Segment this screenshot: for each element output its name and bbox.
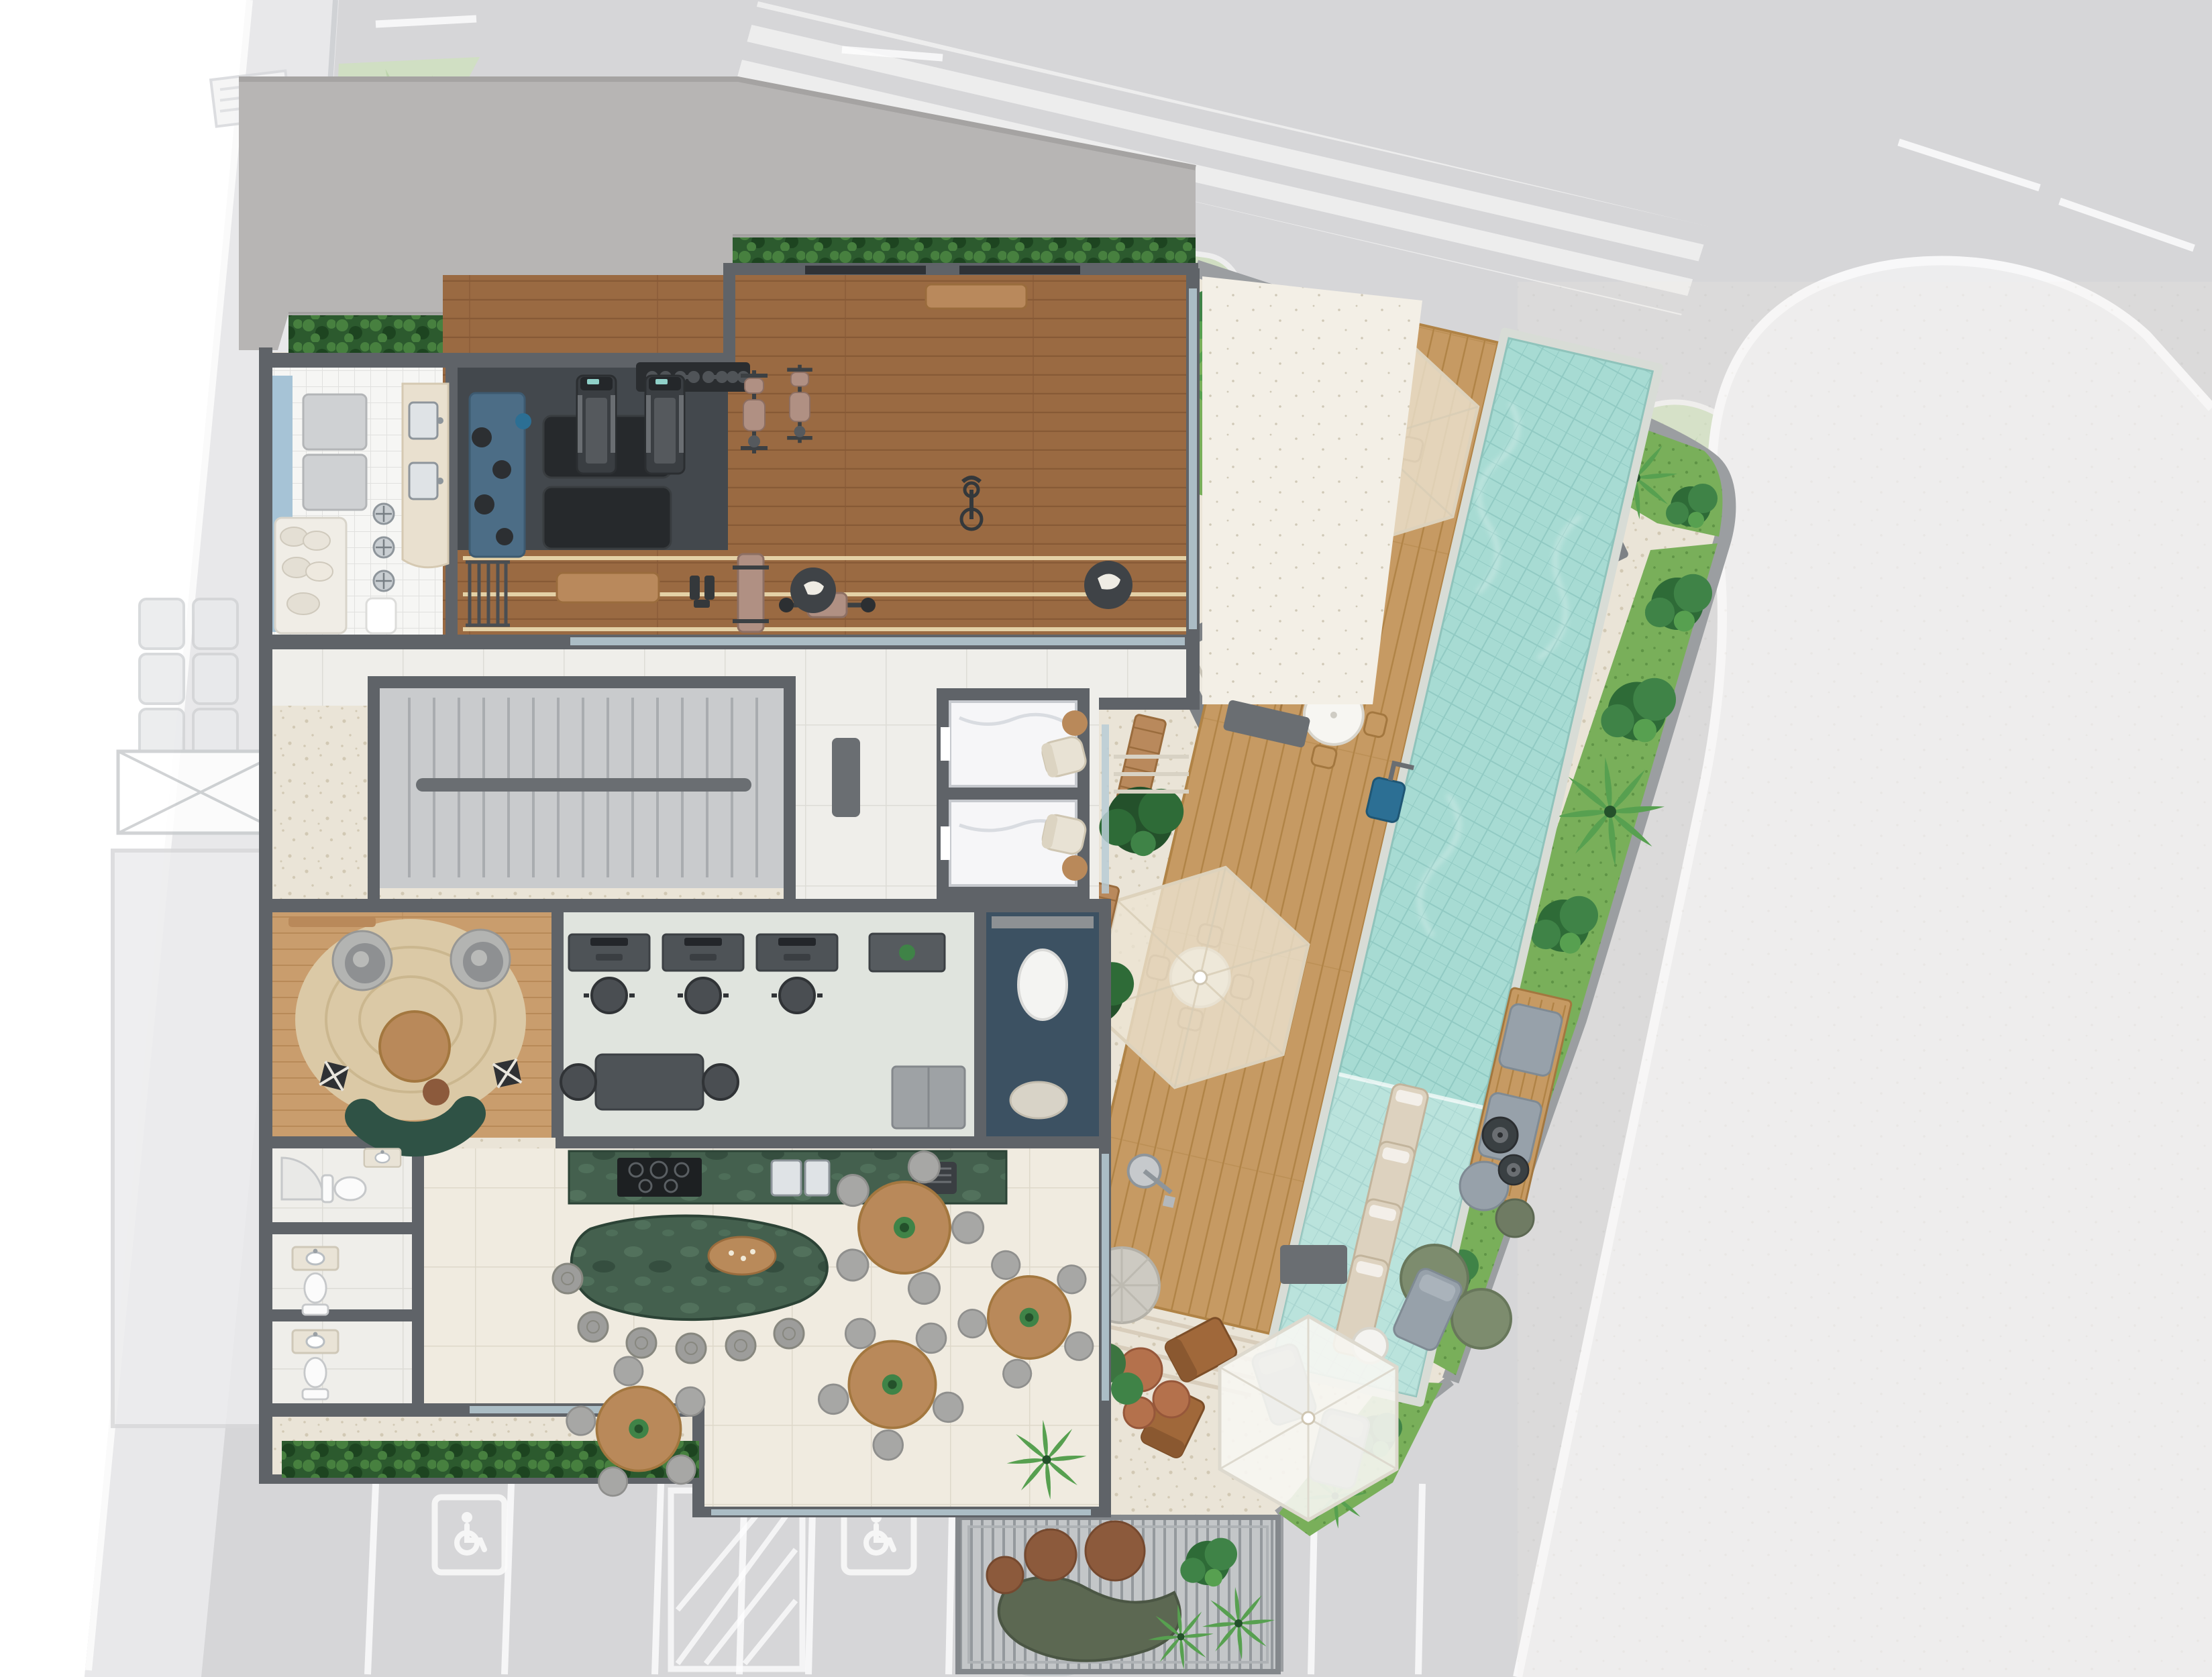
planter-bench xyxy=(1020,1046,1073,1152)
spa-shower-room xyxy=(272,376,448,633)
lobby-bench xyxy=(832,738,860,817)
elevator-bank xyxy=(937,688,1090,899)
exercise-bike xyxy=(961,478,982,529)
pool-deck-group xyxy=(966,260,1716,1446)
pouf xyxy=(423,1079,450,1105)
elevator-cabin xyxy=(941,702,1076,786)
director-chair xyxy=(319,1061,349,1091)
palm-icon xyxy=(352,68,457,175)
daybed-platform xyxy=(1465,987,1572,1205)
fire-bowl xyxy=(1499,1155,1528,1185)
wood-bench xyxy=(557,573,659,602)
lobby-floor xyxy=(796,703,1099,911)
side-table xyxy=(1062,855,1088,881)
corner-sidewalk-island xyxy=(1518,260,2212,1677)
in-pool-lounger xyxy=(1332,1254,1390,1358)
pool-coping xyxy=(1261,327,1664,1407)
kitchen-counter xyxy=(569,1151,1006,1203)
strength-machine xyxy=(787,365,812,443)
lobby-seating xyxy=(832,710,1189,881)
stair-handrail xyxy=(416,778,751,792)
sidewalk-speckle xyxy=(1518,282,2212,1677)
access-ramp xyxy=(1157,441,1629,759)
wheelchair-icon xyxy=(435,1497,505,1572)
cooktop xyxy=(617,1158,702,1197)
dining-table-set xyxy=(938,1225,1116,1401)
pool-lift-chair xyxy=(1365,760,1414,824)
party-room xyxy=(553,1129,1116,1502)
shaft-void xyxy=(118,751,283,833)
brown-lounger xyxy=(1139,1385,1206,1460)
accessible-wc xyxy=(282,1148,401,1202)
coworking-floor xyxy=(564,912,974,1138)
walls xyxy=(259,263,1200,1517)
stool xyxy=(553,1264,582,1293)
gray-lounger xyxy=(1391,1266,1465,1353)
stair-floor xyxy=(380,688,784,888)
gym-floor xyxy=(443,275,1196,645)
planter-bench xyxy=(1067,881,1120,986)
road-surface xyxy=(0,0,2212,1677)
building xyxy=(239,79,1422,1517)
parked-car xyxy=(988,1495,1108,1674)
dumbbells xyxy=(646,371,749,383)
desk xyxy=(757,934,837,1013)
towel xyxy=(804,581,824,594)
coffee-machine xyxy=(912,1162,957,1194)
pantry-nook xyxy=(992,916,1094,1118)
pouf xyxy=(790,567,836,613)
marquee-slab xyxy=(239,79,1196,350)
service-area-ghost xyxy=(113,599,283,1426)
double-sink xyxy=(772,1160,829,1195)
wc-3 xyxy=(293,1330,338,1399)
granite-island xyxy=(572,1216,827,1320)
glass-walls xyxy=(470,288,1197,1515)
towel xyxy=(366,598,396,633)
property-lot xyxy=(271,268,1727,1672)
fire-bowl xyxy=(1483,1118,1518,1152)
wheelchair-icon xyxy=(844,1497,914,1572)
lane-dashes xyxy=(376,19,2194,248)
meeting-desk xyxy=(561,1054,738,1110)
spa-bench-strip xyxy=(272,376,293,632)
road-median-islands xyxy=(582,201,1719,622)
deck-steps xyxy=(1063,1301,1263,1395)
training-mat xyxy=(543,416,671,478)
support-table xyxy=(870,934,945,971)
swimming-pool xyxy=(1272,338,1652,1396)
serving-table xyxy=(698,1277,751,1444)
outdoor-shower xyxy=(1122,1152,1183,1208)
coworking xyxy=(561,934,965,1128)
left-curb-line xyxy=(89,0,250,1670)
garden-walkway xyxy=(1202,276,1422,704)
streets xyxy=(0,0,2212,1677)
training-mat xyxy=(543,487,671,549)
in-pool-lounger xyxy=(1359,1140,1416,1245)
wood-bench xyxy=(926,284,1026,309)
stool xyxy=(627,1328,656,1358)
east-garden-furnishings xyxy=(1353,1118,1534,1363)
walkway-bench xyxy=(1222,700,1310,749)
lounge xyxy=(288,916,526,1139)
wash-counter xyxy=(403,384,448,567)
treadmill xyxy=(645,376,684,474)
wall-screens xyxy=(805,266,1080,274)
offsite-void xyxy=(0,0,248,1677)
stall-lines xyxy=(368,1484,1422,1674)
pergola-lounge xyxy=(958,1517,1278,1672)
stepper xyxy=(690,576,715,608)
palm-icon xyxy=(295,643,351,700)
dining-table-set xyxy=(812,1129,1001,1315)
cabinet xyxy=(892,1067,965,1128)
lounge-corner xyxy=(1084,1245,1347,1460)
dining-table-set xyxy=(796,1281,996,1480)
elevator-cabin xyxy=(941,801,1076,885)
planter-bench xyxy=(1114,714,1167,820)
shelf xyxy=(992,916,1094,928)
stair-hall xyxy=(409,698,757,877)
hedge-north-east xyxy=(733,237,1196,267)
street-parking-stall-band xyxy=(733,1,1709,315)
water-caustics xyxy=(1379,401,1610,949)
hedge-south xyxy=(282,1441,699,1478)
blue-kettlebell xyxy=(515,413,531,429)
dumbbell-rack xyxy=(636,362,750,392)
stool xyxy=(726,1331,755,1360)
pouf xyxy=(1025,1529,1076,1580)
outdoor-kitchen xyxy=(768,1257,829,1509)
desk xyxy=(569,934,649,1013)
green-lounge-pouf xyxy=(1452,1289,1511,1348)
green-lounge-pouf xyxy=(1401,1245,1468,1312)
gray-bench xyxy=(1280,1245,1347,1284)
no-parking-hatch xyxy=(671,1491,802,1669)
restrooms xyxy=(282,1148,401,1399)
basin xyxy=(1018,950,1067,1020)
dining-table-set xyxy=(558,1345,719,1502)
bowl-chair xyxy=(333,931,392,990)
functional-training-items xyxy=(470,362,750,557)
desk xyxy=(663,934,743,1013)
corridor-floor xyxy=(271,649,1186,706)
gym-equipment xyxy=(466,266,1133,632)
shoulder-press xyxy=(733,554,769,632)
street-retaining-curb xyxy=(1196,268,1727,1381)
lot-paving xyxy=(271,268,1727,1672)
gym-led-lines xyxy=(463,558,1186,629)
curved-sofa xyxy=(362,1114,468,1139)
lounge-floor xyxy=(271,912,551,1138)
bbq-terrace xyxy=(698,1245,1397,1520)
palm-icon xyxy=(305,437,368,502)
pergola-sofa xyxy=(999,1577,1180,1661)
side-table xyxy=(1062,710,1088,736)
cabana xyxy=(1220,1316,1397,1520)
umbrella-table-set xyxy=(1249,308,1491,572)
wood-deck xyxy=(1071,296,1498,1334)
towel xyxy=(1098,574,1120,589)
brown-lounger xyxy=(1163,1315,1239,1383)
blue-mat xyxy=(470,393,525,557)
table-set xyxy=(1270,651,1397,778)
pouf xyxy=(1086,1521,1145,1580)
wall-bars xyxy=(466,562,510,625)
wc-2 xyxy=(293,1247,338,1315)
director-chair xyxy=(493,1059,522,1088)
treadmill xyxy=(577,376,616,474)
in-pool-lounger xyxy=(1345,1198,1403,1303)
kettlebells xyxy=(472,427,513,545)
hedge-north-west xyxy=(288,315,733,358)
deck-entry-steps xyxy=(1114,757,1189,792)
left-curb-line-2 xyxy=(286,0,335,778)
bench-with-barbell xyxy=(779,593,876,617)
ramp-steps xyxy=(1191,633,1268,728)
pouf xyxy=(987,1557,1023,1593)
rug xyxy=(295,919,526,1120)
surface-parking-lot xyxy=(368,1484,1422,1674)
bread-basket xyxy=(708,1237,776,1275)
white-entry-steps xyxy=(211,70,291,126)
strength-machine xyxy=(741,370,768,453)
pouf xyxy=(1084,561,1133,609)
spa-cabinets xyxy=(303,394,366,510)
left-planted-median xyxy=(294,57,480,959)
in-pool-lounger xyxy=(1372,1083,1430,1187)
stool xyxy=(578,1312,608,1342)
site-plan xyxy=(0,0,2212,1677)
garden-beds xyxy=(1107,274,1722,1536)
pouf xyxy=(1460,1162,1508,1210)
shower-valves xyxy=(374,504,394,591)
east-edge xyxy=(1278,1381,1451,1672)
pantry-nook-floor xyxy=(986,912,1099,1138)
console xyxy=(288,916,376,927)
palm-icon xyxy=(1007,1420,1087,1500)
spa-daybed xyxy=(275,518,346,633)
palm-icon xyxy=(331,166,402,237)
ramp-panel-ghost xyxy=(113,851,274,1426)
waste-bins xyxy=(140,599,238,759)
restroom-floor xyxy=(272,1148,412,1403)
wet-deck xyxy=(1272,1074,1483,1396)
corner-curb xyxy=(1518,260,2212,1677)
party-terrace-pocket xyxy=(702,1403,1099,1507)
pouf xyxy=(1496,1199,1534,1237)
bowl-chair xyxy=(451,930,510,989)
umbrella-table-set xyxy=(1079,846,1321,1110)
coffee-table xyxy=(380,1012,450,1081)
left-sidewalk xyxy=(85,0,339,1677)
stool xyxy=(774,1319,804,1348)
side-table xyxy=(1353,1328,1387,1363)
communal-concrete-table xyxy=(904,1313,992,1515)
pet-bed xyxy=(1010,1082,1067,1118)
spa-room-floor xyxy=(271,366,451,636)
ramp-handrail xyxy=(1225,510,1567,684)
party-room-floor xyxy=(424,1148,1099,1403)
stool xyxy=(676,1334,706,1363)
training-zone xyxy=(458,366,728,550)
